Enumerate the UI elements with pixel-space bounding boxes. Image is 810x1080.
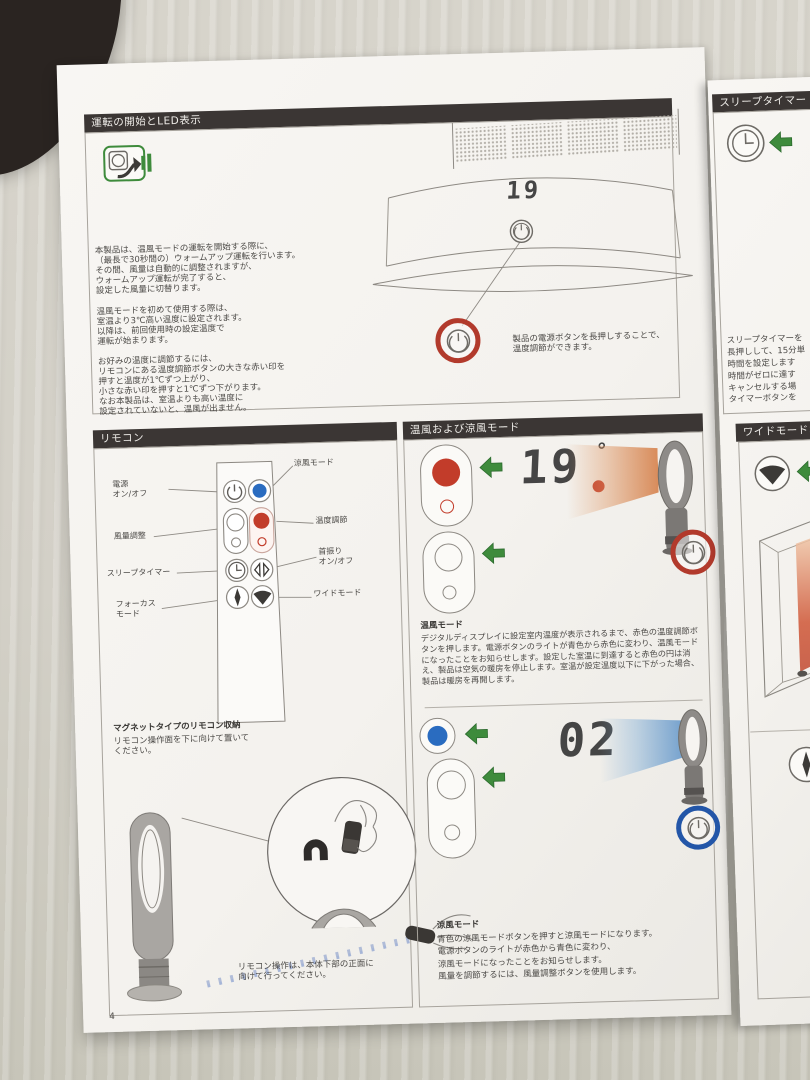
- remote-label-oscillation: 首振り オン/オフ: [318, 546, 353, 567]
- cool-mode-heading: 涼風モード: [437, 920, 480, 931]
- tower-fan-illustration: [121, 810, 190, 1008]
- wide-icon: [251, 585, 274, 608]
- power-callout-note: 製品の電源ボタンを長押しすることで、 温度調節ができます。: [512, 330, 665, 354]
- magnet-zoom-circle: [264, 773, 420, 929]
- manual-page-left: 運転の開始とLED表示 本製品は、温風モードの運転を開始する際に、 （最長で30…: [57, 47, 732, 1033]
- remote-label-cool-mode: 涼風モード: [294, 458, 334, 469]
- page-number: 4: [109, 1012, 115, 1023]
- green-arrow-icon: [465, 723, 488, 744]
- wide-icon: [753, 454, 792, 493]
- airflow-buttons-icon: [223, 508, 248, 554]
- remote-label-wide-mode: ワイドモード: [313, 588, 361, 599]
- green-arrow-icon: [482, 543, 505, 564]
- cool-mode-body: 青色の涼風モードボタンを押すと涼風モードになります。 電源ボタンのライトが赤色か…: [437, 928, 658, 983]
- green-arrow-icon: [769, 132, 792, 153]
- remote-pointing-note: リモコン操作は、本体下部の正面に 向けて行ってください。: [238, 959, 375, 983]
- heater-front-illustration: [358, 107, 702, 331]
- oscillation-icon: [250, 558, 273, 581]
- photo-of-manual: 運転の開始とLED表示 本製品は、温風モードの運転を開始する際に、 （最長で30…: [0, 0, 810, 1080]
- green-arrow-icon: [797, 461, 810, 481]
- power-button-callout-red-ring: [670, 529, 716, 575]
- operation-paragraph-2: 温風モードを初めて使用する際は、 室温より3℃高い温度に設定されます。 以降は、…: [96, 303, 247, 347]
- sleep-timer-body: スリープタイマーを 長押しして、15分単 時間を設定します 時間がゼロに達す キ…: [726, 333, 807, 407]
- magnet-storage-text: リモコン操作面を下に向けて置いて ください。: [113, 733, 249, 757]
- heater-display-temperature: 19: [506, 176, 542, 205]
- heat-mode-body: デジタルディスプレイに設定室内温度が表示されるまで、赤色の温度調節ボタンを押しま…: [421, 625, 704, 687]
- power-icon: [685, 815, 711, 841]
- operation-paragraph-3: お好みの温度に調節するには、 リモコンにある温度調節ボタンの大きな赤い印を 押す…: [98, 352, 287, 417]
- remote-label-sleep-timer: スリープタイマー: [107, 567, 171, 579]
- clock-icon: [725, 123, 766, 164]
- plug-in-icon: [103, 143, 154, 184]
- remote-control-diagram: [206, 459, 289, 725]
- section-header-wide-mode: ワイドモードお: [736, 420, 810, 442]
- remote-label-airflow: 風量調整: [114, 531, 146, 542]
- clock-icon: [225, 559, 248, 582]
- remote-label-temperature: 温度調節: [315, 515, 347, 526]
- heat-mode-heading: 温風モード: [420, 620, 463, 631]
- power-button-icon: [223, 480, 246, 503]
- green-arrow-icon: [482, 767, 505, 788]
- power-icon: [445, 327, 472, 354]
- remote-label-focus-mode: フォーカス モード: [116, 599, 157, 620]
- operation-paragraph-1: 本製品は、温風モードの運転を開始する際に、 （最長で30秒間の）ウォームアップ運…: [95, 241, 302, 297]
- temperature-buttons-icon: [249, 507, 274, 553]
- cool-mode-dot-icon: [248, 479, 271, 502]
- green-arrow-icon: [480, 457, 503, 478]
- focus-icon: [226, 586, 249, 609]
- power-icon: [680, 539, 707, 566]
- focus-icon: [787, 745, 810, 784]
- hot-cool-fan-cool: [663, 707, 724, 813]
- wide-mode-room-illustration: [754, 504, 810, 707]
- remote-label-power: 電源 オン/オフ: [112, 479, 147, 500]
